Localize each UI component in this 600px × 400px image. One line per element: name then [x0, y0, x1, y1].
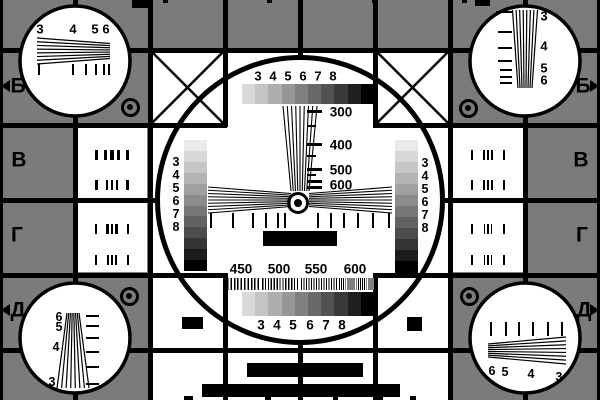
- bottom-black-bar-upper: [247, 363, 363, 377]
- cropped-glyph-fragment: [333, 396, 338, 400]
- line-group-bar: [487, 150, 489, 160]
- resolution-wedge-top-right: [526, 10, 527, 88]
- line-group-bar: [104, 150, 107, 160]
- line-group-bar: [471, 180, 473, 190]
- grayscale-staircase-right: [395, 195, 418, 207]
- line-group-bar: [115, 224, 117, 234]
- grayscale-staircase-left: [184, 173, 207, 184]
- scale-tick: [210, 213, 212, 228]
- scale-tick: [357, 213, 359, 228]
- bullseye-dot: [127, 104, 133, 110]
- bottom-black-bar-lower: [202, 384, 400, 397]
- scale-dash: [86, 325, 99, 327]
- resolution-wedge-top-left: [37, 52, 110, 53]
- gray-bar-top-number: 3: [254, 70, 261, 83]
- cropped-glyph-fragment: [265, 396, 271, 400]
- scale-tick: [518, 322, 520, 336]
- bottom-scale-label: 600: [344, 262, 367, 276]
- bullseye-dot: [126, 293, 132, 299]
- scale-tick: [284, 213, 286, 228]
- scale-tick: [265, 213, 267, 228]
- line-group-bar: [491, 224, 493, 234]
- grayscale-staircase-left: [184, 227, 207, 238]
- line-group-bar: [106, 180, 109, 190]
- bullseye-dot: [465, 105, 471, 111]
- grayscale-staircase-left: [184, 206, 207, 217]
- grayscale-bar-top: [321, 84, 335, 104]
- grayscale-bar-bottom: [334, 292, 348, 316]
- line-group-bar: [95, 255, 97, 265]
- grayscale-staircase-left: [184, 140, 207, 151]
- line-group-bar: [106, 224, 108, 234]
- gray-bar-bottom-number: 3: [257, 318, 265, 332]
- scale-tick: [532, 322, 534, 336]
- resolution-wedge-top-left: [37, 49, 110, 50]
- scale-dash: [500, 82, 512, 84]
- grayscale-staircase-right: [395, 151, 418, 163]
- gray-bar-top-number: 5: [284, 70, 291, 83]
- scale-dash: [86, 351, 99, 353]
- resolution-wedge-center-vertical: [296, 106, 298, 191]
- scale-dash: [86, 383, 99, 385]
- gray-bar-bottom-number: 5: [289, 318, 297, 332]
- corner-wedge-number: 5: [56, 321, 63, 334]
- gray-bar-top-number: 8: [329, 70, 336, 83]
- gray-bar-top-number: 4: [269, 70, 276, 83]
- corner-wedge-number: 4: [528, 368, 535, 381]
- grayscale-staircase-left: [184, 184, 207, 195]
- resolution-wedge-center-vertical: [302, 106, 304, 191]
- line-group-bar: [483, 180, 485, 190]
- scale-tick: [252, 213, 254, 228]
- scale-dash: [307, 143, 322, 146]
- resolution-wedge-center-right: [309, 202, 392, 204]
- scale-tick: [388, 213, 390, 228]
- line-group-bar: [95, 180, 98, 190]
- cropped-glyph-fragment: [410, 396, 416, 400]
- line-group-bar: [491, 150, 493, 160]
- resolution-wedge-center-right: [309, 197, 392, 199]
- corner-wedge-number: 4: [69, 23, 76, 36]
- line-group-bar: [483, 150, 485, 160]
- grayscale-bar-bottom: [361, 292, 375, 316]
- scale-dash: [496, 11, 512, 13]
- stair-left-number: 6: [173, 195, 180, 208]
- stair-right-number: 5: [422, 183, 429, 196]
- corner-wedge-number: 4: [53, 341, 60, 354]
- line-group-bar: [117, 150, 120, 160]
- resolution-wedge-center-left: [208, 197, 291, 199]
- line-group-bar: [487, 224, 489, 234]
- bullseye-dot: [294, 199, 302, 207]
- bottom-scale-label: 500: [268, 262, 291, 276]
- cropped-digit-fragment: [372, 0, 377, 3]
- scale-tick: [103, 64, 105, 75]
- scale-tick: [330, 213, 332, 228]
- line-group-bar: [116, 180, 119, 190]
- grayscale-bar-bottom: [308, 292, 322, 316]
- scale-tick: [108, 64, 110, 75]
- grayscale-staircase-right: [395, 162, 418, 174]
- grayscale-staircase-left: [184, 238, 207, 249]
- scale-dash: [498, 47, 512, 49]
- grayscale-staircase-right: [395, 140, 418, 152]
- vertical-scale-label: 400: [330, 138, 353, 152]
- line-group-bar: [110, 150, 113, 160]
- line-group-bar: [126, 150, 129, 160]
- scale-dash: [307, 174, 316, 176]
- vertical-scale-label: 600: [330, 178, 353, 192]
- grayscale-staircase-right: [395, 206, 418, 218]
- line-group-bar: [484, 224, 486, 234]
- line-group-bar: [491, 255, 493, 265]
- frequency-burst-segment: [262, 278, 299, 290]
- grayscale-staircase-right: [395, 173, 418, 185]
- scale-tick: [547, 322, 549, 336]
- grayscale-bar-bottom: [268, 292, 282, 316]
- scale-dash: [86, 315, 99, 317]
- grayscale-staircase-left: [184, 260, 207, 271]
- grayscale-bar-top: [282, 84, 296, 104]
- stair-right-number: 7: [422, 209, 429, 222]
- grayscale-bar-top: [255, 84, 269, 104]
- scale-dash: [500, 76, 512, 78]
- line-group-bar: [503, 180, 505, 190]
- scale-tick: [372, 213, 374, 228]
- stair-left-number: 7: [173, 208, 180, 221]
- reference-bar-center: [263, 231, 337, 246]
- grayscale-bar-top: [242, 84, 256, 104]
- gray-bar-bottom-number: 8: [338, 318, 346, 332]
- scale-dash: [307, 186, 322, 189]
- line-group-bar: [111, 180, 114, 190]
- grayscale-staircase-left: [184, 195, 207, 206]
- grayscale-staircase-right: [395, 217, 418, 229]
- gray-bar-top-number: 7: [314, 70, 321, 83]
- scale-dash: [307, 168, 322, 171]
- scale-dash: [498, 60, 512, 62]
- line-group-bar: [95, 150, 98, 160]
- grayscale-bar-top: [334, 84, 348, 104]
- line-group-bar: [503, 150, 505, 160]
- gray-bar-bottom-number: 7: [322, 318, 330, 332]
- phase-mark-right: [407, 317, 422, 331]
- corner-wedge-number: 3: [540, 10, 547, 23]
- grayscale-staircase-right: [395, 261, 418, 273]
- line-group-bar: [471, 224, 473, 234]
- corner-wedge-number: 5: [502, 366, 509, 379]
- vertical-scale-label: 500: [330, 163, 353, 177]
- cropped-digit-fragment: [462, 0, 467, 3]
- cropped-digit-fragment: [267, 0, 272, 3]
- grayscale-bar-top: [361, 84, 375, 104]
- grayscale-bar-bottom: [242, 292, 256, 316]
- line-group-bar: [503, 255, 505, 265]
- grayscale-staircase-right: [395, 228, 418, 240]
- scale-dash: [307, 180, 322, 183]
- grayscale-staircase-left: [184, 249, 207, 260]
- line-group-bar: [111, 224, 113, 234]
- resolution-wedge-top-right: [523, 10, 524, 88]
- corner-wedge-number: 4: [540, 40, 547, 53]
- cropped-element-top-right: [475, 0, 490, 6]
- scale-tick: [505, 322, 507, 336]
- line-group-bar: [471, 255, 473, 265]
- line-group-bar: [503, 224, 505, 234]
- corner-circle: [470, 6, 580, 116]
- grayscale-bar-top: [268, 84, 282, 104]
- grayscale-staircase-left: [184, 151, 207, 162]
- stair-right-number: 8: [422, 222, 429, 235]
- tv-test-card: ТАБЛИЦА 0249 бис 200 300 350 400 450 500…: [0, 0, 600, 400]
- grayscale-staircase-right: [395, 184, 418, 196]
- line-group-bar: [111, 255, 113, 265]
- frequency-burst-segment: [227, 278, 260, 290]
- corner-circle: [470, 283, 580, 393]
- line-group-bar: [107, 255, 109, 265]
- corner-wedge-number: 3: [49, 376, 56, 389]
- grayscale-staircase-left: [184, 162, 207, 173]
- scale-tick: [343, 213, 345, 228]
- scale-tick: [490, 322, 492, 336]
- scale-tick: [85, 64, 87, 75]
- stair-left-number: 3: [173, 156, 180, 169]
- line-group-bar: [487, 255, 489, 265]
- scale-dash: [307, 110, 322, 113]
- line-group-bar: [127, 224, 129, 234]
- cropped-digit-fragment: [163, 0, 168, 3]
- cropped-glyph-fragment: [184, 396, 193, 400]
- cropped-element-top-left: [132, 0, 150, 8]
- resolution-wedge-center-left: [208, 202, 291, 204]
- phase-mark-left: [182, 317, 203, 329]
- scale-dash: [86, 337, 99, 339]
- bottom-scale-label: 450: [230, 262, 253, 276]
- grayscale-bar-top: [295, 84, 309, 104]
- scale-dash: [500, 69, 512, 71]
- vertical-scale-label: 300: [330, 105, 353, 119]
- line-group-bar: [126, 180, 129, 190]
- scale-tick: [232, 213, 234, 228]
- scale-dash: [307, 155, 316, 157]
- corner-wedge-number: 6: [489, 365, 496, 378]
- bullseye-dot: [466, 293, 472, 299]
- line-group-bar: [487, 180, 489, 190]
- corner-wedge-number: 3: [556, 371, 563, 384]
- corner-wedge-number: 6: [540, 74, 547, 87]
- frequency-burst-segment: [301, 278, 337, 290]
- scale-tick: [561, 322, 563, 336]
- scale-tick: [277, 213, 279, 228]
- grayscale-bar-bottom: [321, 292, 335, 316]
- line-group-bar: [471, 150, 473, 160]
- line-group-bar: [491, 180, 493, 190]
- scale-tick: [38, 64, 40, 75]
- stair-left-number: 4: [173, 169, 180, 182]
- line-group-bar: [484, 255, 486, 265]
- grayscale-bar-bottom: [282, 292, 296, 316]
- grayscale-staircase-right: [395, 250, 418, 262]
- grayscale-bar-top: [308, 84, 322, 104]
- scale-tick: [72, 64, 74, 75]
- cropped-glyph-fragment: [374, 396, 383, 400]
- stair-right-number: 6: [422, 196, 429, 209]
- grayscale-staircase-right: [395, 239, 418, 251]
- grayscale-bar-bottom: [255, 292, 269, 316]
- scale-dash: [307, 125, 316, 127]
- gray-bar-top-number: 6: [299, 70, 306, 83]
- scale-dash: [86, 366, 99, 368]
- line-group-bar: [115, 255, 117, 265]
- line-group-bar: [127, 255, 129, 265]
- scale-tick: [95, 64, 97, 75]
- stair-right-number: 3: [422, 157, 429, 170]
- gray-bar-bottom-number: 6: [306, 318, 314, 332]
- corner-wedge-number: 6: [102, 23, 109, 36]
- bottom-scale-label: 550: [305, 262, 328, 276]
- stair-right-number: 4: [422, 170, 429, 183]
- line-group-bar: [95, 224, 97, 234]
- grayscale-bar-bottom: [348, 292, 362, 316]
- frequency-burst-segment: [339, 278, 374, 290]
- stair-left-number: 8: [173, 221, 180, 234]
- stair-left-number: 5: [173, 182, 180, 195]
- grayscale-bar-bottom: [295, 292, 309, 316]
- scale-tick: [317, 213, 319, 228]
- grayscale-staircase-left: [184, 216, 207, 227]
- corner-wedge-number: 5: [91, 23, 98, 36]
- grayscale-bar-top: [348, 84, 362, 104]
- gray-bar-bottom-number: 4: [273, 318, 281, 332]
- scale-dash: [498, 31, 512, 33]
- corner-wedge-number: 3: [36, 23, 43, 36]
